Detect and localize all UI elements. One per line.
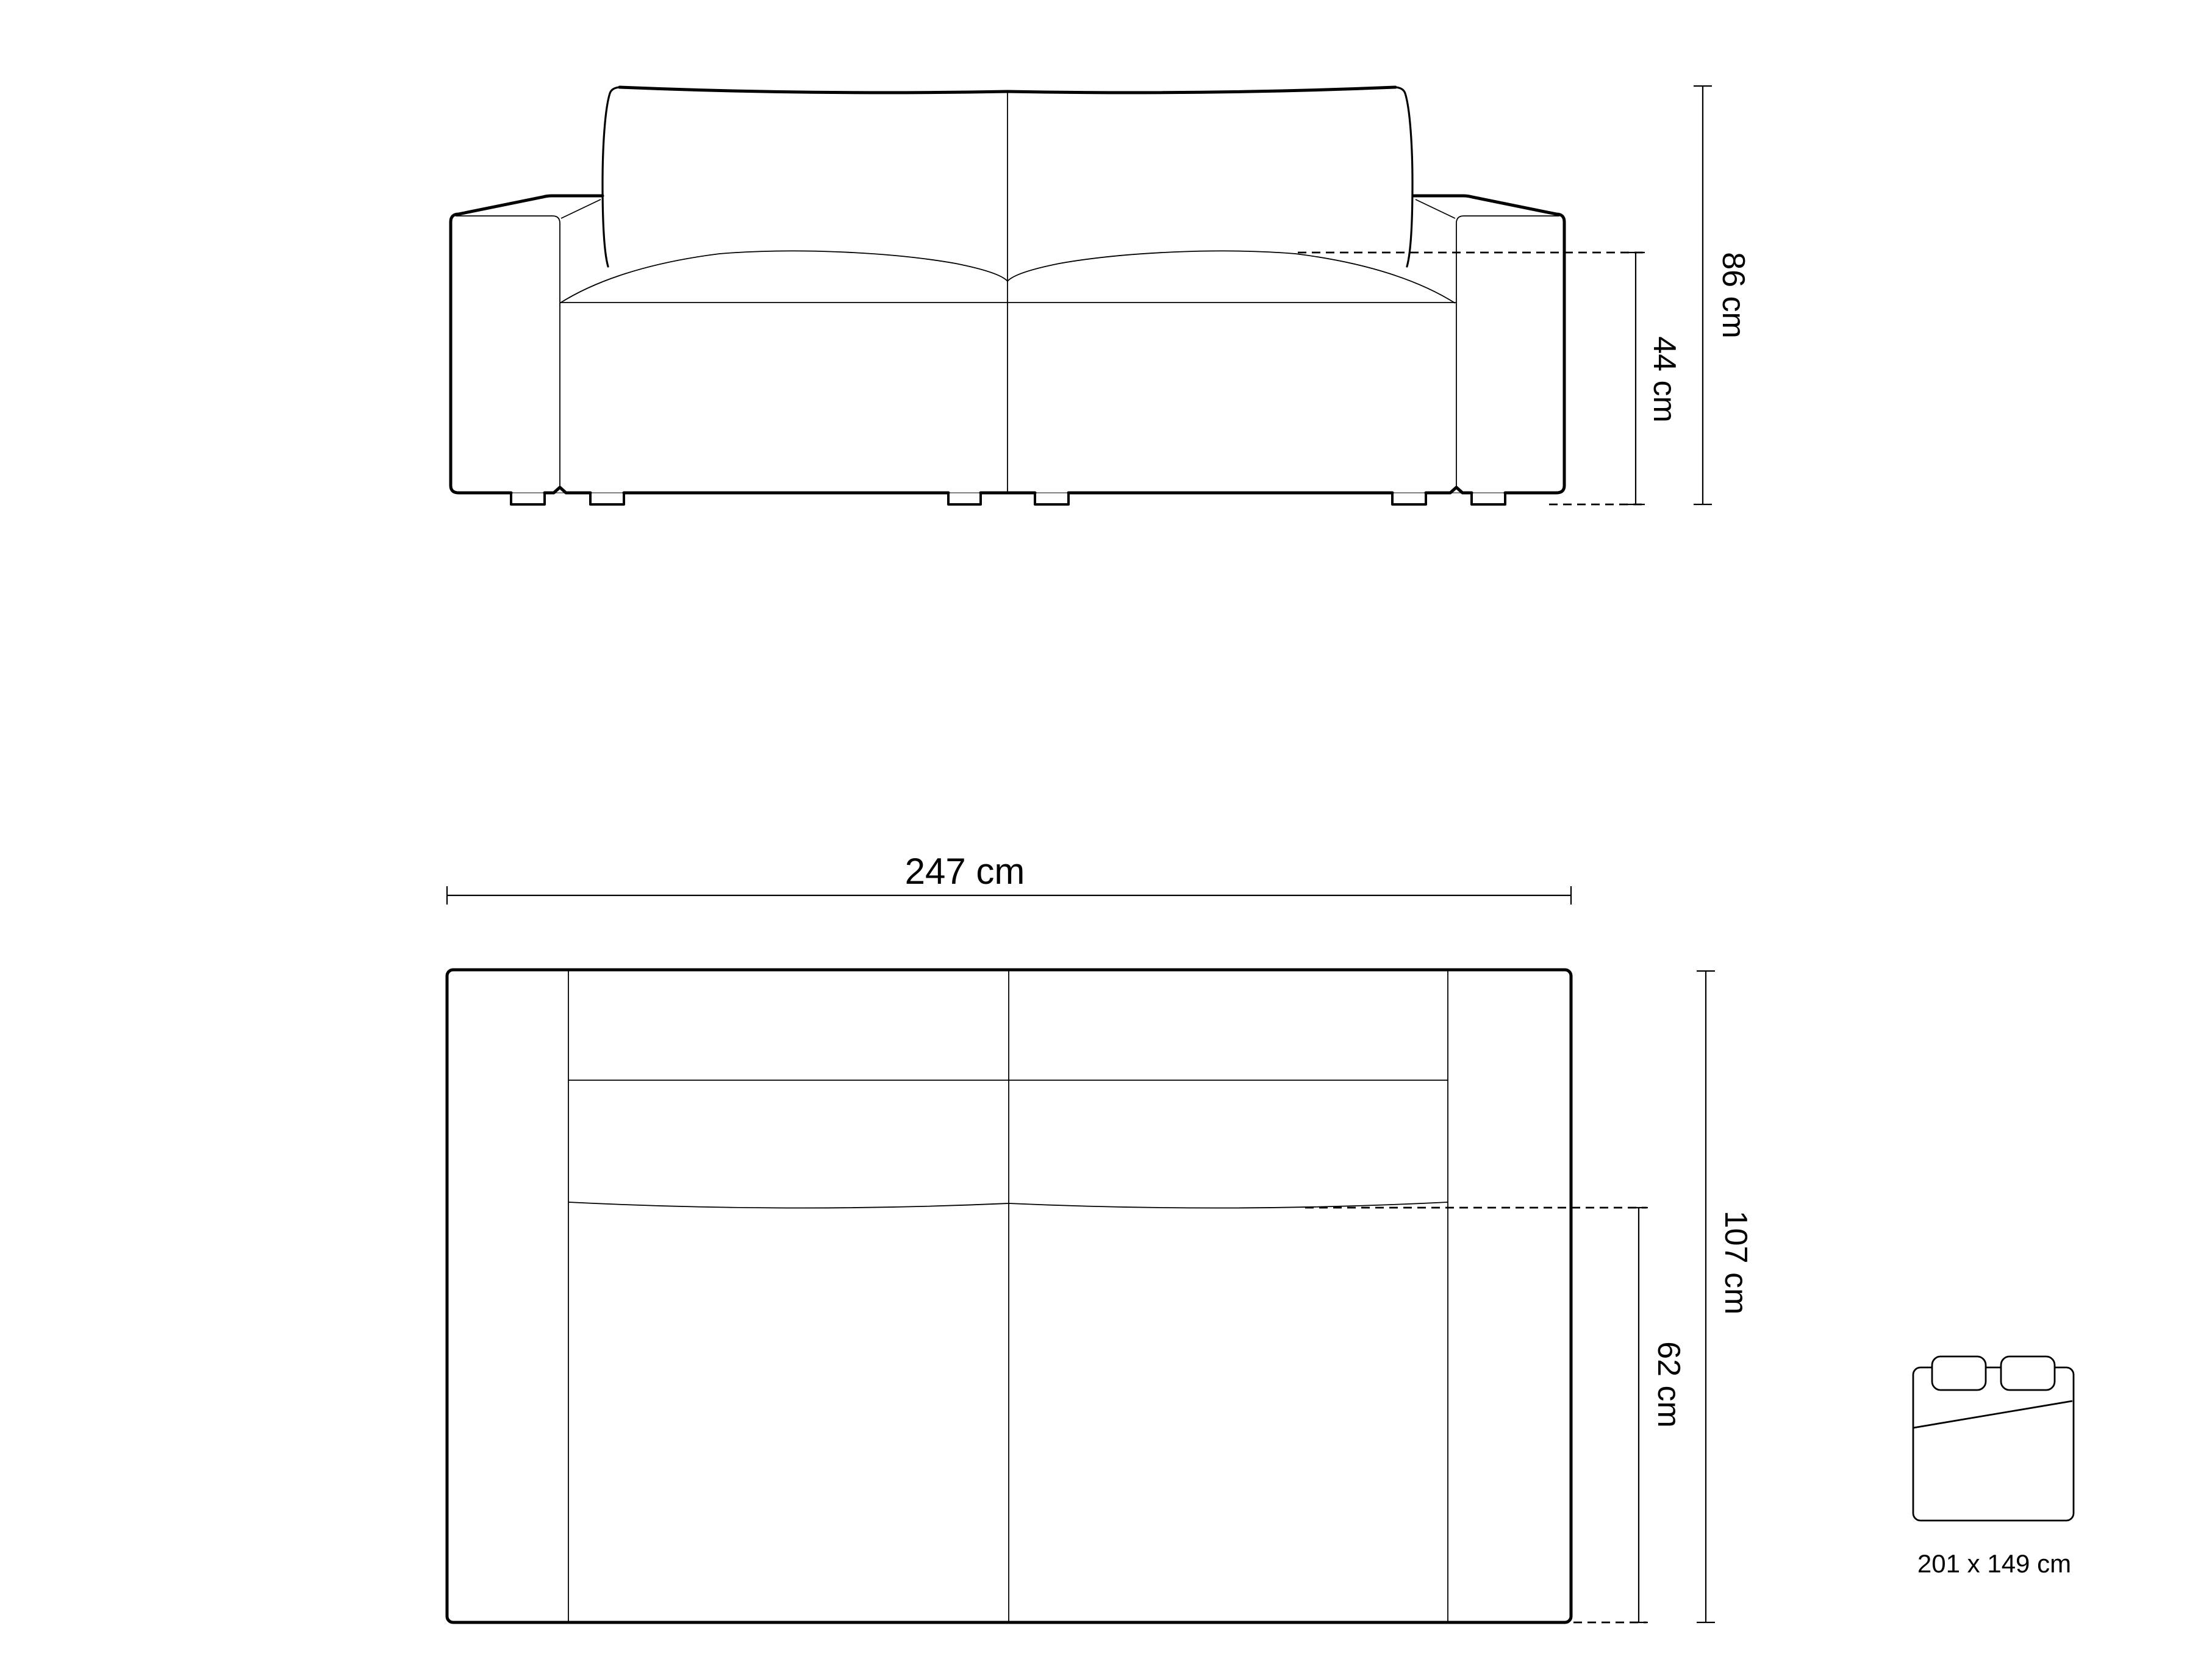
bed-pillow-left-icon <box>1932 1356 1986 1390</box>
sofa-dimension-diagram: 44 cm 86 cm 247 cm 62 cm 107 cm <box>0 0 2212 1659</box>
plan-seat-front-curve <box>568 1202 1448 1208</box>
seat-depth-dimension: 62 cm <box>1630 1208 1686 1622</box>
plan-armrest-seams <box>568 971 1448 1621</box>
dimension-diagram-page: 44 cm 86 cm 247 cm 62 cm 107 cm <box>0 0 2212 1659</box>
sofa-front-view <box>451 87 1564 504</box>
overall-width-dimension: 247 cm <box>447 851 1571 905</box>
seat-height-dimension-line <box>1627 253 1645 504</box>
sofa-feet <box>511 493 1505 504</box>
sleeping-area-icon: 201 x 149 cm <box>1913 1356 2074 1578</box>
overall-height-dimension-line <box>1694 86 1712 504</box>
seat-height-label: 44 cm <box>1647 336 1682 423</box>
seat-depth-label: 62 cm <box>1651 1341 1686 1428</box>
sleeping-area-size-label: 201 x 149 cm <box>1917 1549 2071 1578</box>
left-armrest-outer-edge <box>451 196 603 486</box>
overall-width-label: 247 cm <box>905 851 1025 892</box>
front-view-dimensions: 44 cm 86 cm <box>1298 86 1751 504</box>
top-view-dimensions: 247 cm 62 cm 107 cm <box>447 851 1753 1622</box>
left-armrest-front-face <box>456 216 560 487</box>
bed-mattress-icon <box>1913 1367 2074 1521</box>
armrest-top-inner-edges <box>561 199 1455 218</box>
sofa-top-view <box>447 970 1571 1622</box>
overall-depth-dimension-line <box>1697 971 1715 1622</box>
overall-height-label: 86 cm <box>1716 252 1751 339</box>
overall-depth-dimension: 107 cm <box>1697 971 1753 1622</box>
right-armrest-outer-edge <box>1414 196 1564 486</box>
bed-pillow-right-icon <box>2001 1356 2055 1390</box>
overall-height-dimension: 86 cm <box>1694 86 1751 504</box>
seat-depth-dimension-line <box>1630 1208 1648 1622</box>
right-armrest-front-face <box>1456 216 1559 487</box>
seat-height-dimension: 44 cm <box>1627 253 1682 504</box>
overall-depth-label: 107 cm <box>1718 1211 1753 1315</box>
